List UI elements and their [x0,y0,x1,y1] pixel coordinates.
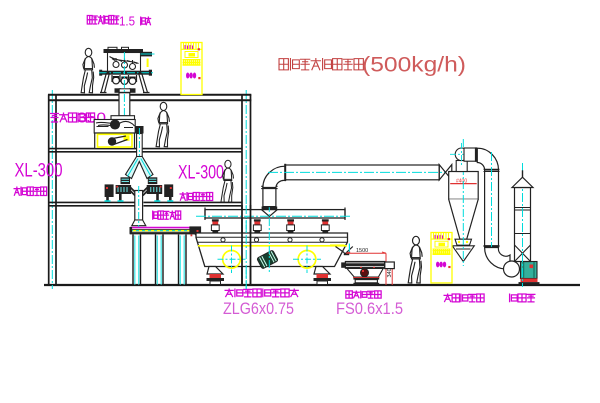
svg-text:340: 340 [387,268,393,277]
svg-text:ZLG6x0.75: ZLG6x0.75 [223,299,294,318]
svg-text:1.5: 1.5 [119,14,135,29]
svg-text:XL-300: XL-300 [178,163,224,184]
svg-text:#400: #400 [456,179,467,185]
svg-text:(500kg/h): (500kg/h) [362,54,466,77]
svg-text:1500: 1500 [356,248,368,254]
svg-text:XL-300: XL-300 [15,161,63,182]
svg-text:FS0.6x1.5: FS0.6x1.5 [336,299,403,318]
